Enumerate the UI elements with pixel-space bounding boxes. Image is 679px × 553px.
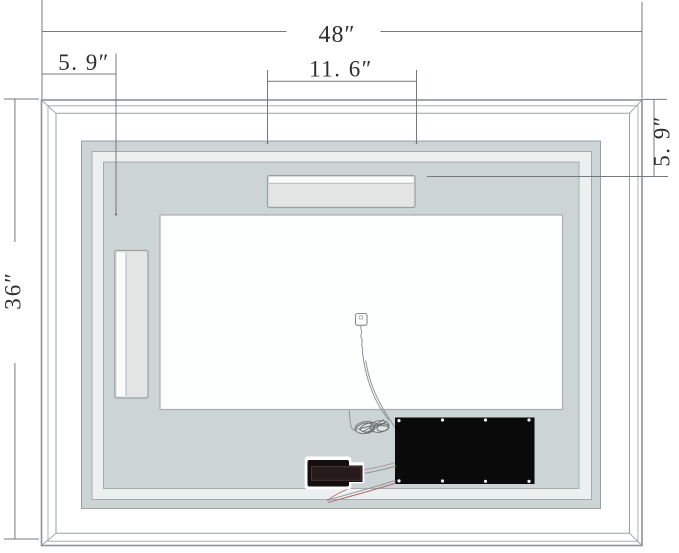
svg-text:5. 9″: 5. 9″ (650, 115, 675, 167)
svg-text:36″: 36″ (1, 271, 26, 310)
svg-text:11. 6″: 11. 6″ (309, 57, 373, 82)
svg-text:5. 9″: 5. 9″ (58, 50, 110, 75)
svg-text:48″: 48″ (319, 22, 356, 48)
